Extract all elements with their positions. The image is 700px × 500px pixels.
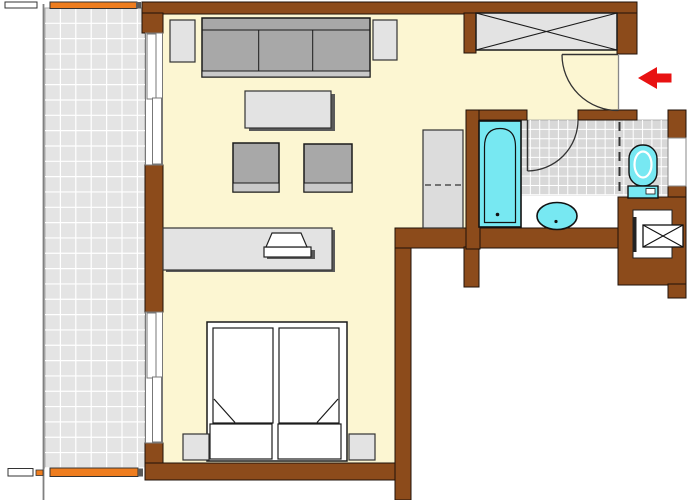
- wall-bathroom-top-left: [479, 110, 527, 120]
- armchair-left-front: [233, 183, 279, 192]
- railing-bottom-end-post: [138, 469, 143, 477]
- wc-window-inset: [668, 138, 686, 186]
- wall-hall-stub: [464, 247, 479, 287]
- nightstand-right: [349, 434, 375, 460]
- bathtub: [479, 121, 521, 227]
- armchair-right-front: [304, 183, 352, 192]
- railing-top-end-post: [136, 2, 141, 9]
- floorplan-page: [0, 0, 700, 500]
- railing-top-white-seg: [5, 2, 37, 8]
- wall-top: [142, 2, 637, 14]
- bathtub-drain: [496, 213, 500, 217]
- wall-shaft-extension: [668, 284, 686, 298]
- washbasin: [537, 203, 577, 230]
- railing-bottom: [50, 468, 138, 477]
- sofa-front-edge: [202, 71, 370, 77]
- wall-left-middle: [145, 165, 163, 312]
- shaft-door-line: [634, 217, 637, 252]
- wall-niche-stub: [464, 13, 476, 53]
- wall-bathroom-bottom: [395, 228, 620, 248]
- railing-top: [50, 2, 137, 9]
- side-table-right: [373, 20, 397, 60]
- window-top-panel-a: [147, 34, 156, 99]
- tv-screen: [266, 233, 307, 247]
- wall-left-bottom-corner: [145, 443, 163, 465]
- entrance-arrow: [638, 67, 672, 89]
- wall-bottom: [145, 463, 396, 480]
- railing-bottom-nub: [36, 470, 43, 476]
- tv-base: [264, 247, 311, 257]
- coffee-table: [245, 91, 331, 128]
- floorplan-drawing: [0, 0, 700, 500]
- window-bottom-panel-b: [153, 377, 162, 442]
- wall-entry-right: [617, 13, 637, 54]
- floor-bath-threshold: [527, 110, 578, 120]
- side-table-left: [170, 20, 195, 62]
- nightstand-left: [183, 434, 209, 460]
- wall-left-top-corner: [142, 13, 163, 33]
- wall-bedroom-right: [395, 247, 411, 500]
- washbasin-drain: [554, 220, 557, 223]
- railing-bottom-white-seg: [8, 469, 33, 477]
- hall-wardrobe-cabinet: [423, 130, 463, 228]
- toilet-flush-handle: [646, 189, 655, 195]
- sofa-body: [202, 18, 370, 77]
- wall-bathroom-top-right: [578, 110, 637, 120]
- window-top-panel-b: [153, 98, 162, 164]
- wall-bathroom-left: [466, 110, 480, 249]
- pillow-left: [210, 424, 272, 459]
- pillow-right: [278, 424, 341, 459]
- window-bottom-panel-a: [147, 313, 156, 378]
